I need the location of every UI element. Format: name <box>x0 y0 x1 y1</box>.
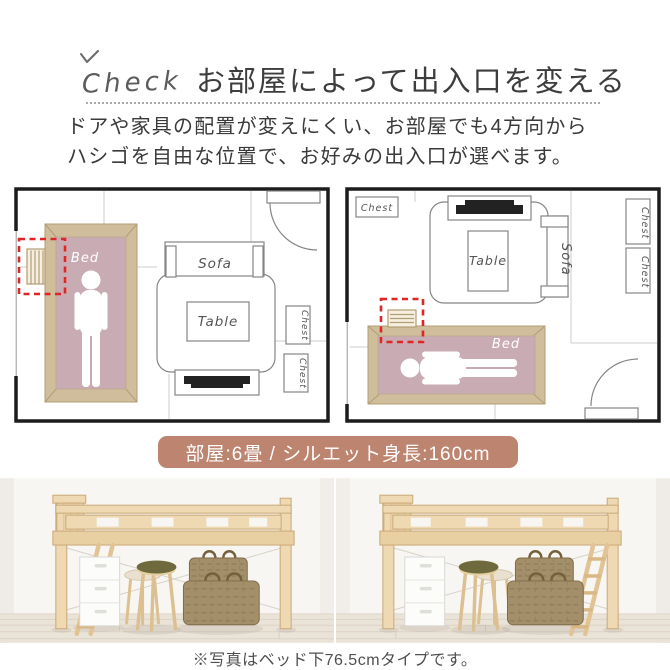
chest-right-2: Chest <box>626 248 650 293</box>
sofa-label: Sofa <box>198 256 232 272</box>
lead-line-1: ドアや家具の配置が変えにくい、お部屋でも4方向から <box>67 112 588 142</box>
dotted-divider <box>86 102 600 104</box>
ladder-icon <box>388 310 416 327</box>
chest-label: Chest <box>299 310 309 341</box>
sofa-label: Sofa <box>558 243 573 276</box>
tv-stand <box>175 370 259 395</box>
product-infographic-page: Check お部屋によって出入口を変える ドアや家具の配置が変えにくい、お部屋で… <box>0 0 670 670</box>
bed-label: Bed <box>492 337 520 352</box>
section-heading: Check お部屋によって出入口を変える <box>82 58 627 100</box>
check-label: Check <box>81 66 182 101</box>
chest-right-1: Chest <box>286 306 310 344</box>
chest-label: Chest <box>639 207 650 239</box>
lead-text: ドアや家具の配置が変えにくい、お部屋でも4方向から ハシゴを自由な位置で、お好み… <box>67 112 588 172</box>
floor-plan-left: Sofa Table Chest Chest Bed <box>14 187 330 423</box>
table-label: Table <box>469 253 507 268</box>
window-symbol <box>14 231 19 376</box>
bed: Bed <box>45 224 137 402</box>
sofa: Sofa <box>165 242 264 277</box>
lead-line-2: ハシゴを自由な位置で、お好みの出入口が選べます。 <box>67 142 588 172</box>
photo-caption: ※写真はベッド下76.5cmタイプです。 <box>0 646 670 670</box>
floor-plan-right: Chest Table Sofa Chest Chest <box>345 187 661 423</box>
table: Table <box>468 231 508 291</box>
window-symbol <box>345 322 350 404</box>
table-label: Table <box>198 314 239 330</box>
chest-label: Chest <box>361 203 393 214</box>
chest-right-2: Chest <box>284 354 308 392</box>
loft-bed-photo-left <box>0 478 334 643</box>
loft-bed-photo-right <box>336 478 670 643</box>
ladder-icon <box>27 249 45 284</box>
chest-label: Chest <box>297 358 307 389</box>
chest-label: Chest <box>639 256 650 288</box>
chest-top-left: Chest <box>356 197 398 217</box>
bed: Bed <box>368 326 545 404</box>
drawer-unit <box>405 557 445 626</box>
tv-stand <box>448 196 531 220</box>
chest-right-1: Chest <box>626 199 650 244</box>
drawer-unit <box>80 557 120 626</box>
room-info-badge: 部屋:6畳 / シルエット身長:160cm <box>158 436 518 468</box>
table: Table <box>187 302 249 341</box>
bed-label: Bed <box>71 251 99 266</box>
page-title: お部屋によって出入口を変える <box>196 58 627 100</box>
